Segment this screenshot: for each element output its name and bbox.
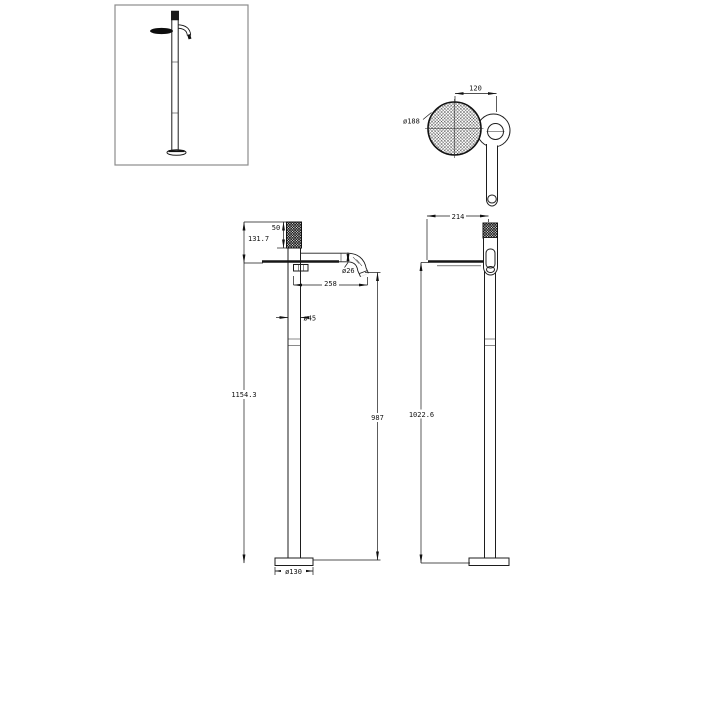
side-knurled-cap [483, 223, 498, 238]
side-column [485, 238, 496, 558]
dim-shelf-height: 1022.6 [406, 263, 470, 564]
dim-label-spout-reach: 258 [324, 280, 337, 288]
dim-overall-height: 1154.3 [229, 263, 259, 563]
dim-label-overall-height: 1154.3 [231, 391, 256, 399]
front-knurled-cap [287, 222, 302, 248]
dim-depth: 214 [427, 212, 489, 261]
technical-drawing: 120 ø188 50 [0, 0, 720, 720]
dim-label-head-drop: 131.7 [248, 235, 269, 243]
thumb-shower-head [150, 28, 173, 34]
dim-cap-height: 50 [272, 222, 287, 248]
front-column [288, 248, 301, 558]
top-view: 120 ø188 [403, 85, 510, 207]
dim-label-shelf-height: 1022.6 [409, 411, 434, 419]
front-base [275, 558, 313, 566]
dim-label-spout-outlet-height: 987 [371, 414, 384, 422]
dim-label-depth: 214 [452, 213, 465, 221]
side-base [469, 558, 509, 566]
thumb-knurled-cap [171, 11, 178, 20]
thumbnail-view [115, 5, 248, 165]
dim-label-handle-offset: 120 [469, 85, 482, 93]
thumb-column [172, 19, 178, 151]
dim-spout-reach: 258 [294, 276, 368, 288]
dim-base-diameter: ø130 [275, 567, 313, 577]
dim-label-cap-height: 50 [272, 224, 280, 232]
dim-label-column-diameter: ø45 [304, 315, 317, 323]
spout-fill [300, 258, 365, 276]
side-handle-grip [486, 249, 495, 268]
front-view: 50 131.7 1154.3 ø26 258 [229, 222, 387, 576]
thumb-aerator [189, 35, 190, 40]
side-view: 214 1022.6 [406, 212, 509, 566]
dim-spout-outlet-height: 987 [313, 273, 387, 561]
dim-head-diameter: ø188 [403, 113, 432, 126]
dim-label-head-diameter: ø188 [403, 118, 420, 126]
dim-label-base-diameter: ø130 [285, 568, 302, 576]
drawing-canvas: 120 ø188 50 [0, 0, 720, 720]
dim-label-spout-diameter: ø26 [342, 267, 355, 275]
